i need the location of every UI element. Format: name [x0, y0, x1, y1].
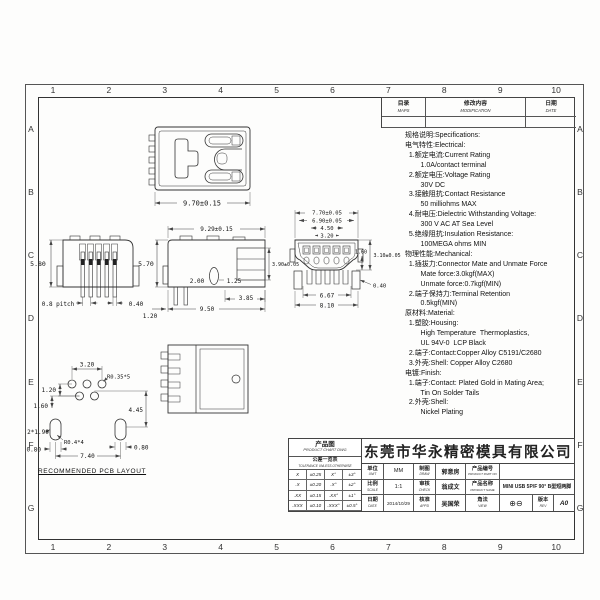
tolerance-cell: .XX: [289, 491, 307, 501]
product-name-label-en: PRODUCT NAME: [470, 488, 494, 493]
tolerance-cell: X°: [325, 470, 343, 480]
zone-number: 9: [472, 541, 528, 554]
pcb-layout-caption: RECOMMENDED PCB LAYOUT: [38, 468, 146, 475]
zone-letter: F: [574, 413, 586, 476]
rev-col-modification: 修改内容 MODIFICATION: [426, 98, 526, 117]
tolerance-cell: ±0.25: [307, 470, 325, 480]
tolerance-cell: ±2°: [343, 480, 361, 490]
company-name: 东莞市华永精密模具有限公司: [362, 439, 574, 464]
unit-value: MM: [384, 464, 414, 480]
zone-number: 6: [305, 541, 361, 554]
projection-symbol-icon: ⊕⊖: [500, 495, 533, 511]
checked-label-en: CHECK: [419, 488, 431, 493]
scale-value: 1:1: [384, 480, 414, 496]
drawn-label-cell: 制图 DRAW: [414, 464, 436, 480]
product-chart-en: PRODUCT CHART DWG: [303, 448, 346, 453]
tolerance-cell: .XXX: [289, 501, 307, 511]
scale-label-en: SCALE: [367, 488, 378, 493]
tolerance-header-en: TOLERANCE UNLESS OTHERWISE: [298, 464, 351, 469]
zone-letters-left: ABCDEFG: [25, 97, 37, 540]
specifications-text: 规格说明:Specifications: 电气特性:Electrical: 1.…: [405, 131, 577, 418]
date-label-en: DATE: [368, 504, 377, 509]
projection-label-cell: 角法 VIEW: [466, 495, 500, 511]
date-value: 2014/10/29: [384, 495, 414, 511]
projection-version-cell: ⊕⊖ 版本 REV A0: [500, 495, 574, 511]
version-label-cell: 版本 REV: [533, 495, 554, 511]
checked-label-cell: 审核 CHECK: [414, 480, 436, 496]
tolerance-cell: .X°: [325, 480, 343, 490]
zone-letter: D: [25, 287, 37, 350]
zone-number: 4: [193, 84, 249, 97]
zone-number: 9: [472, 84, 528, 97]
zone-number: 10: [528, 84, 584, 97]
zone-numbers-bottom: 12345678910: [25, 541, 584, 554]
drawn-name: 郭意房: [436, 464, 466, 480]
rev-col-date: 日期 DATE: [526, 98, 576, 117]
zone-number: 3: [137, 541, 193, 554]
checked-name: 翁成文: [436, 480, 466, 496]
projection-label-en: VIEW: [478, 504, 486, 509]
rev-empty-cell: [526, 117, 576, 128]
zone-number: 10: [528, 541, 584, 554]
title-block-left: 产品图 PRODUCT CHART DWG 公差一览表 TOLERANCE UN…: [289, 439, 362, 511]
zone-numbers-top: 12345678910: [25, 84, 584, 97]
rev-date-label-en: DATE: [546, 108, 557, 113]
zone-number: 3: [137, 84, 193, 97]
product-name-value: MINI USB 5P/F 90° B型短两脚: [500, 480, 574, 496]
tolerance-cell: X: [289, 470, 307, 480]
tolerance-cell: .X: [289, 480, 307, 490]
tolerance-cell: .XX°: [325, 491, 343, 501]
zone-number: 5: [249, 84, 305, 97]
rev-mark-label-en: MAPS: [398, 108, 410, 113]
unit-label-en: UNIT: [369, 472, 377, 477]
zone-number: 7: [360, 84, 416, 97]
approved-label-cell: 核准 APPD: [414, 495, 436, 511]
zone-letter: F: [25, 413, 37, 476]
unit-label-cell: 单位 UNIT: [362, 464, 384, 480]
tolerance-cell: ±1°: [343, 491, 361, 501]
zone-letter: C: [25, 224, 37, 287]
drawn-label-en: DRAW: [419, 472, 429, 477]
tolerance-table: X ±0.25 X° ±3° .X ±0.20 .X° ±2° .XX ±0.1…: [289, 470, 361, 511]
approved-label-en: APPD: [420, 504, 429, 509]
tolerance-cell: ±0.10: [307, 501, 325, 511]
part-no-label-en: PRODUCT PART NO: [468, 472, 497, 477]
zone-number: 4: [193, 541, 249, 554]
title-block-right: 东莞市华永精密模具有限公司 单位 UNIT MM 制图 DRAW 郭意房 产品编…: [362, 439, 574, 511]
tolerance-cell: ±0.20: [307, 480, 325, 490]
zone-letter: A: [25, 97, 37, 160]
zone-number: 6: [305, 84, 361, 97]
zone-number: 1: [25, 84, 81, 97]
rev-col-mark: 目录 MAPS: [382, 98, 426, 117]
zone-letter: E: [25, 350, 37, 413]
version-label-en: REV: [540, 504, 547, 509]
product-chart-cell: 产品图 PRODUCT CHART DWG: [289, 439, 361, 457]
scale-label-cell: 比例 SCALE: [362, 480, 384, 496]
title-block-grid: 单位 UNIT MM 制图 DRAW 郭意房 产品编号 PRODUCT PART…: [362, 464, 574, 511]
zone-number: 5: [249, 541, 305, 554]
zone-number: 1: [25, 541, 81, 554]
rev-empty-cell: [382, 117, 426, 128]
zone-letter: B: [25, 160, 37, 223]
zone-letter: G: [25, 477, 37, 540]
zone-number: 2: [81, 84, 137, 97]
part-no-value: [500, 464, 574, 480]
zone-letter: G: [574, 477, 586, 540]
zone-number: 8: [416, 541, 472, 554]
part-no-label-cell: 产品编号 PRODUCT PART NO: [466, 464, 500, 480]
tolerance-cell: ±3°: [343, 470, 361, 480]
rev-empty-cell: [426, 117, 526, 128]
zone-number: 7: [360, 541, 416, 554]
zone-number: 2: [81, 541, 137, 554]
revision-table: 目录 MAPS 修改内容 MODIFICATION 日期 DATE: [381, 97, 575, 128]
tolerance-cell: ±0.15: [307, 491, 325, 501]
approved-name: 吴国荣: [436, 495, 466, 511]
zone-number: 8: [416, 84, 472, 97]
tolerance-header-cell: 公差一览表 TOLERANCE UNLESS OTHERWISE: [289, 457, 361, 470]
rev-mod-label-en: MODIFICATION: [460, 108, 490, 113]
date-label-cell: 日期 DATE: [362, 495, 384, 511]
tolerance-cell: ±0.5°: [343, 501, 361, 511]
tolerance-cell: .XXX°: [325, 501, 343, 511]
version-value: A0: [554, 495, 574, 511]
title-block: 产品图 PRODUCT CHART DWG 公差一览表 TOLERANCE UN…: [288, 438, 575, 512]
product-name-label-cell: 产品名称 PRODUCT NAME: [466, 480, 500, 496]
